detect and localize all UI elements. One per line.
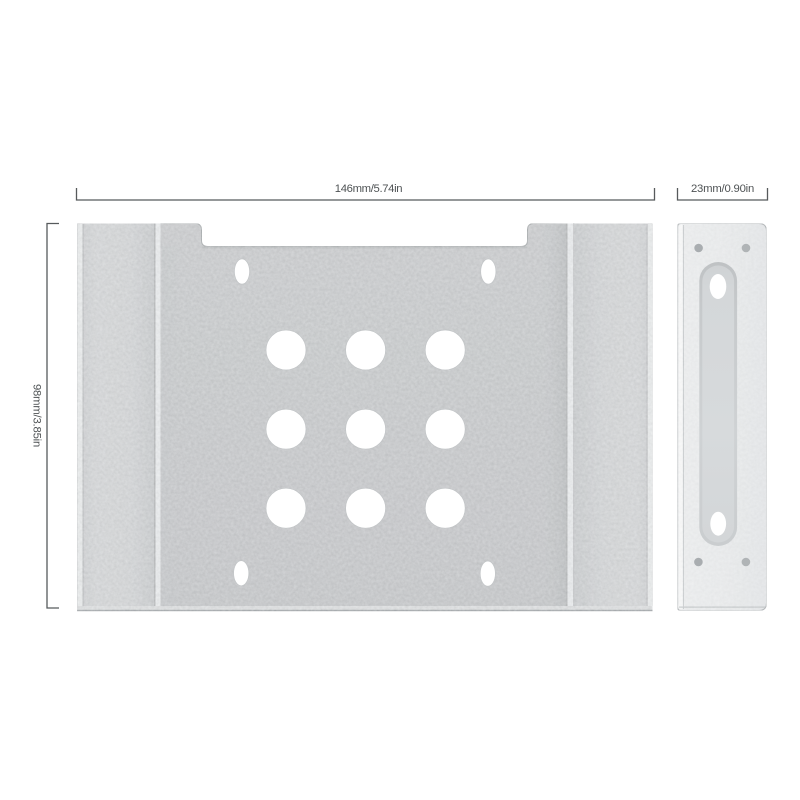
svg-text:23mm/0.90in: 23mm/0.90in: [691, 183, 754, 195]
svg-text:98mm/3.85in: 98mm/3.85in: [31, 384, 43, 447]
svg-text:146mm/5.74in: 146mm/5.74in: [335, 183, 402, 195]
